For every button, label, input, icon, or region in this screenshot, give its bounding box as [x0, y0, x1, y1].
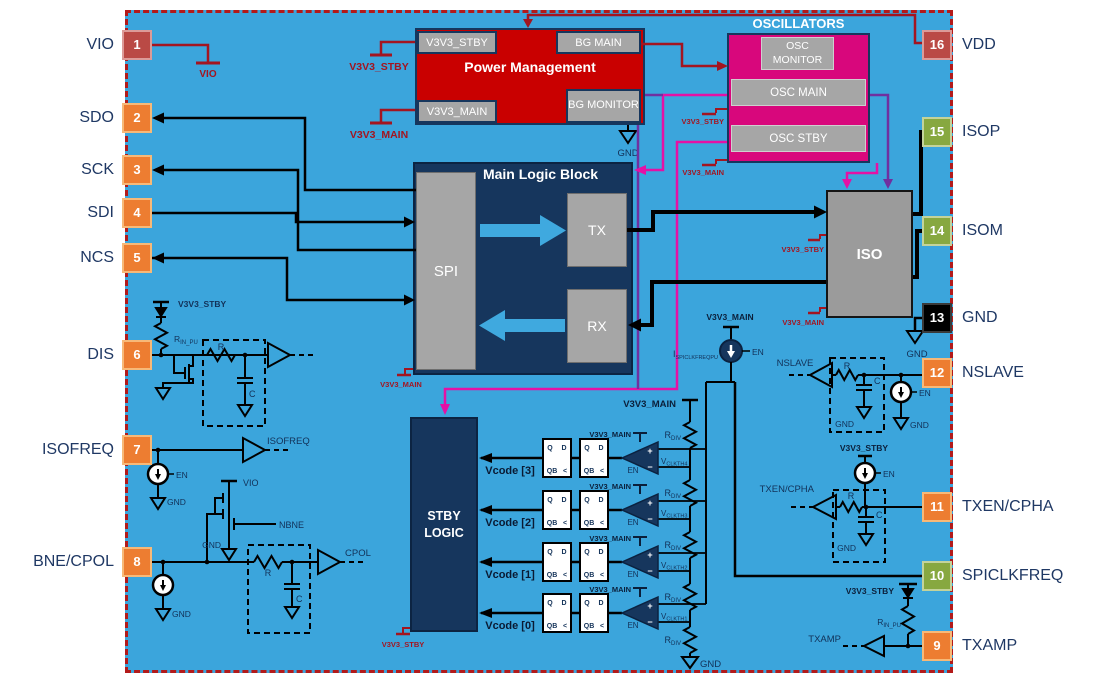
pin-2-sdo: 2 [122, 103, 152, 133]
pin-label-sck: SCK [8, 161, 114, 179]
osc-stby-block: OSC STBY [731, 125, 866, 152]
pin-label-nslave: NSLAVE [962, 364, 1024, 382]
pin-number: 13 [930, 310, 944, 325]
power-management-title: Power Management [415, 59, 645, 75]
stby-logic-label: STBY LOGIC [422, 508, 466, 542]
pin-label-isofreq: ISOFREQ [8, 441, 114, 459]
pin-label-spiclkfreq: SPICLKFREQ [962, 567, 1063, 585]
pin-label-dis: DIS [8, 346, 114, 364]
block-diagram-page: { "pins": { "left": [ {"num":"1","label"… [0, 0, 1110, 691]
pin-number: 2 [133, 110, 140, 125]
pin-label-bne-cpol: BNE/CPOL [8, 553, 114, 571]
pin-number: 11 [930, 499, 944, 514]
pin-number: 9 [933, 638, 940, 653]
iso-block: ISO [826, 190, 913, 318]
pin-10-spiclkfreq: 10 [922, 561, 952, 591]
osc-main-block: OSC MAIN [731, 79, 866, 106]
pin-number: 4 [133, 205, 140, 220]
pm-v3v3-stby-block: V3V3_STBY [417, 31, 497, 54]
pin-label-isop: ISOP [962, 123, 1000, 141]
pin-label-vio: VIO [8, 36, 114, 54]
pin-number: 7 [133, 442, 140, 457]
pin-number: 3 [133, 162, 140, 177]
pin-number: 16 [930, 37, 944, 52]
osc-monitor-block: OSC MONITOR [761, 37, 834, 70]
pin-label-txamp: TXAMP [962, 637, 1017, 655]
pin-label-txen-cpha: TXEN/CPHA [962, 498, 1054, 516]
pin-number: 8 [133, 554, 140, 569]
pin-4-sdi: 4 [122, 198, 152, 228]
pin-number: 12 [930, 365, 944, 380]
stby-logic-block: STBY LOGIC [410, 417, 478, 632]
pin-11-txen-cpha: 11 [922, 492, 952, 522]
pin-12-nslave: 12 [922, 358, 952, 388]
pin-15-isop: 15 [922, 117, 952, 147]
pin-1-vio: 1 [122, 30, 152, 60]
pm-bg-monitor-block: BG MONITOR [566, 89, 641, 123]
pin-6-dis: 6 [122, 340, 152, 370]
pin-number: 6 [133, 347, 140, 362]
pin-label-sdi: SDI [8, 204, 114, 222]
pin-16-vdd: 16 [922, 30, 952, 60]
oscillators-title: OSCILLATORS [727, 16, 870, 31]
pin-number: 10 [930, 568, 944, 583]
pm-bg-main-block: BG MAIN [556, 31, 641, 54]
pin-3-sck: 3 [122, 155, 152, 185]
pin-13-gnd: 13 [922, 303, 952, 333]
pin-number: 5 [133, 250, 140, 265]
pin-label-vdd: VDD [962, 36, 996, 54]
pm-v3v3-main-block: V3V3_MAIN [417, 100, 497, 123]
pin-7-isofreq: 7 [122, 435, 152, 465]
pin-number: 1 [133, 37, 140, 52]
pin-label-gnd: GND [962, 309, 998, 327]
tx-block: TX [567, 193, 627, 267]
spi-block: SPI [416, 172, 476, 370]
pin-9-txamp: 9 [922, 631, 952, 661]
pin-5-ncs: 5 [122, 243, 152, 273]
rx-block: RX [567, 289, 627, 363]
pin-number: 15 [930, 124, 944, 139]
pin-label-isom: ISOM [962, 222, 1003, 240]
pin-label-ncs: NCS [8, 249, 114, 267]
pin-number: 14 [930, 223, 944, 238]
pin-14-isom: 14 [922, 216, 952, 246]
pin-8-bne-cpol: 8 [122, 547, 152, 577]
pin-label-sdo: SDO [8, 109, 114, 127]
